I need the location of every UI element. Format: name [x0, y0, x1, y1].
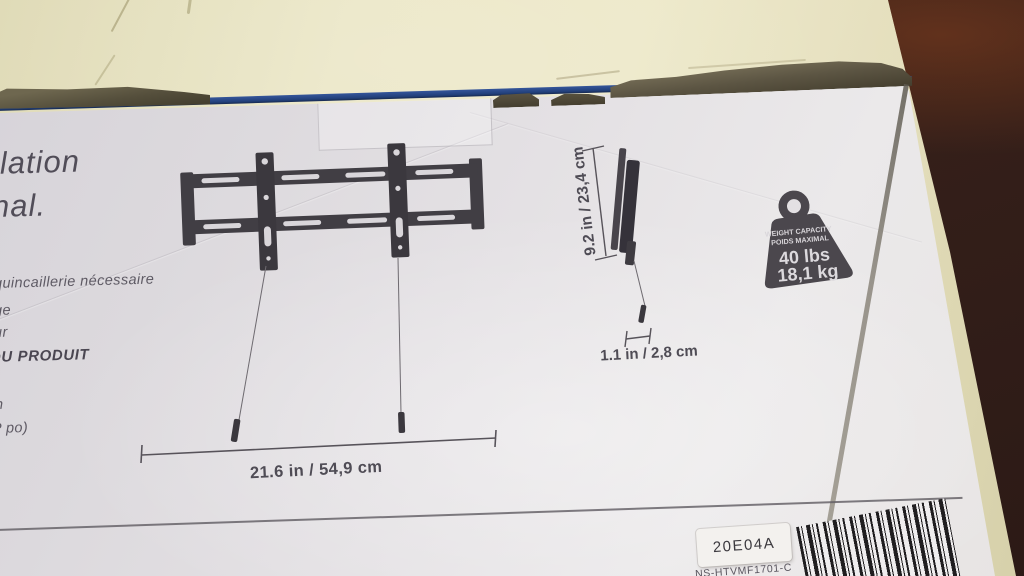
heading-fragment: DU PRODUIT: [0, 346, 90, 366]
detail-fragment-1: n: [0, 397, 4, 413]
left-tv-bracket: [255, 152, 278, 271]
headline-fragment-2: nal.: [0, 187, 46, 224]
table-scuff: [556, 70, 620, 80]
side-pull-string: [634, 261, 645, 306]
right-tv-bracket: [387, 143, 409, 258]
detail-fragment-2: P po): [0, 420, 28, 437]
pull-strings: [239, 258, 401, 420]
bullet-fragment-2: ge: [0, 303, 11, 319]
bracket-holes: [261, 149, 404, 261]
photo-scene: llation nal. quincaillerie nécessaire ge…: [0, 0, 1024, 576]
weight-capacity-icon: WEIGHT CAPACITY POIDS MAXIMAL 40 lbs 18,…: [752, 182, 863, 298]
product-sticker: 20E04A: [696, 523, 792, 567]
dimension-ticks: [141, 430, 496, 463]
mount-front-view-drawing: [155, 138, 510, 458]
side-bracket: [611, 148, 640, 266]
top-rail: [186, 163, 477, 188]
sticker-code: 20E04A: [712, 534, 775, 555]
table-scratch: [94, 54, 115, 85]
headline-fragment-1: llation: [0, 144, 80, 182]
bottom-rail: [188, 209, 479, 234]
weight-kg-value: 18,1 kg: [777, 261, 840, 286]
table-scratch: [111, 0, 132, 32]
bullet-fragment-3: ur: [0, 325, 8, 341]
table-scratch: [187, 0, 192, 14]
side-string-tip: [638, 304, 647, 323]
